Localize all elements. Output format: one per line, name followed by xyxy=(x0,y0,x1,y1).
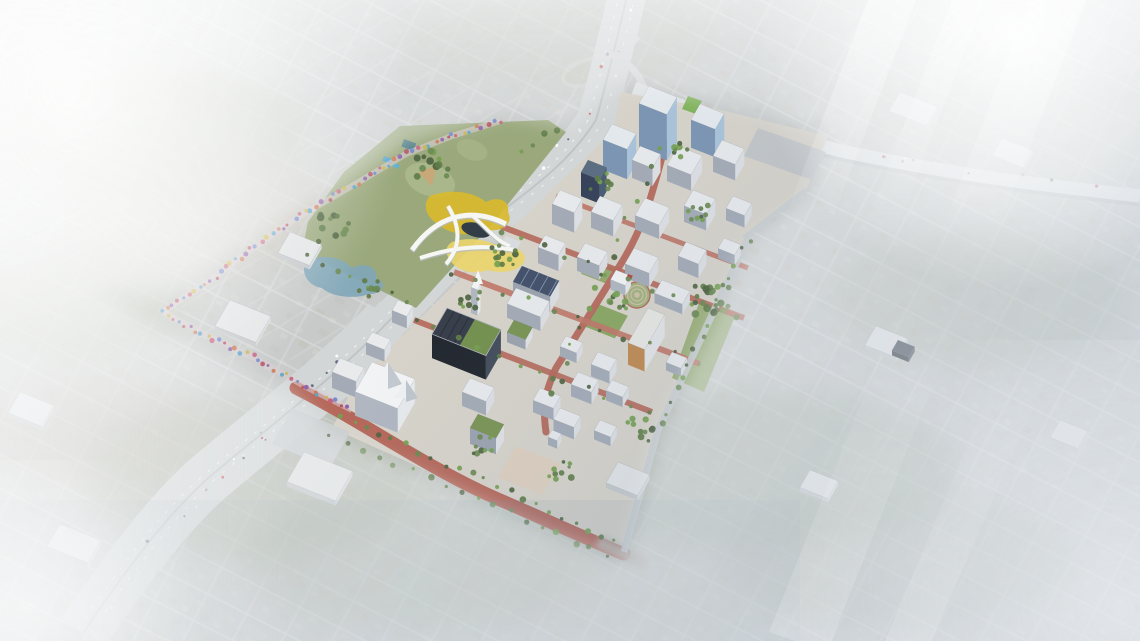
atmosphere-overlays xyxy=(0,0,1140,641)
haze-bottom-right xyxy=(790,340,1140,641)
aerial-rendering xyxy=(0,0,1140,641)
haze-top-band xyxy=(0,0,1140,100)
aerial-rendering-canvas xyxy=(0,0,1140,641)
